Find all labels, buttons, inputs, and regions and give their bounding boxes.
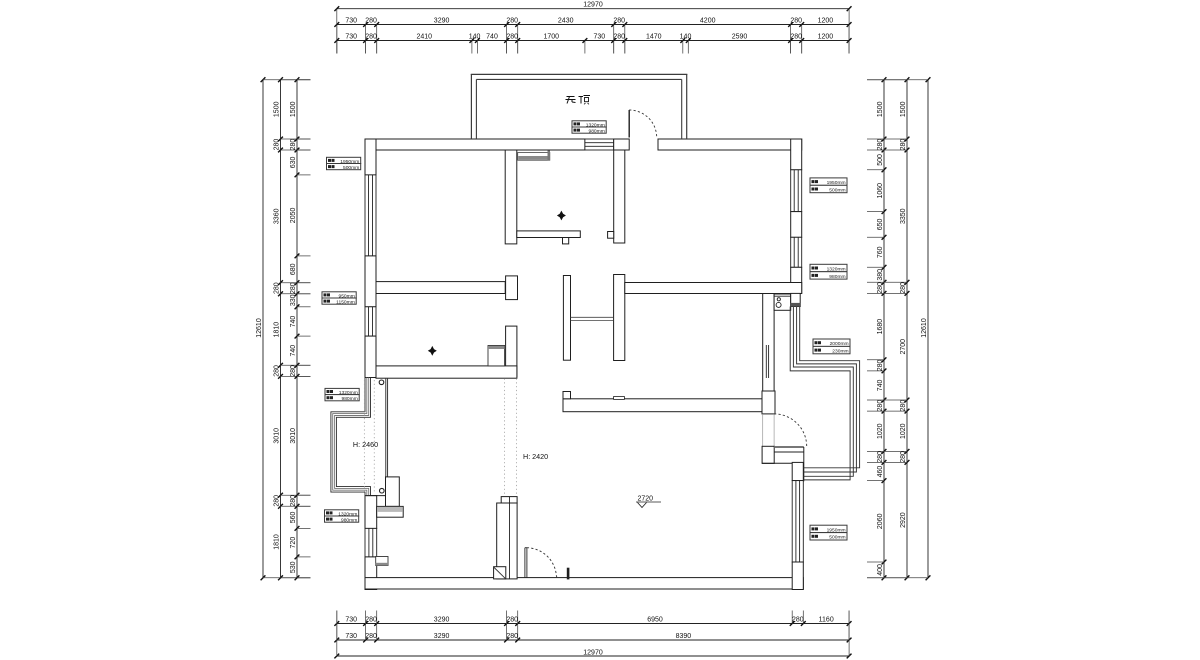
svg-text:1020: 1020 [877,423,884,439]
svg-text:2920: 2920 [900,512,907,528]
svg-text:280: 280 [613,34,625,41]
svg-text:280: 280 [877,359,884,371]
svg-text:1320mm: 1320mm [586,122,605,128]
svg-text:740: 740 [290,316,297,328]
svg-text:280: 280 [290,365,297,377]
svg-text:H: 2460: H: 2460 [353,440,378,449]
svg-text:6950: 6950 [647,617,663,624]
svg-text:1470: 1470 [646,34,662,41]
svg-text:500mm: 500mm [829,535,845,541]
svg-text:980mm: 980mm [588,129,604,135]
svg-text:1810: 1810 [274,322,281,338]
svg-text:1320mm: 1320mm [338,511,357,517]
svg-text:560: 560 [290,511,297,523]
svg-text:730: 730 [593,34,605,41]
svg-text:2060: 2060 [877,513,884,529]
svg-text:280: 280 [506,18,518,25]
svg-text:500: 500 [877,154,884,166]
svg-text:380: 380 [877,269,884,281]
svg-text:740: 740 [486,34,498,41]
svg-text:1020: 1020 [900,423,907,439]
svg-text:12610: 12610 [256,318,263,338]
svg-text:280: 280 [790,18,802,25]
svg-text:280: 280 [900,451,907,463]
svg-text:280: 280 [365,34,377,41]
svg-text:2410: 2410 [417,34,433,41]
svg-text:1500: 1500 [274,101,281,117]
svg-text:500mm: 500mm [829,187,845,193]
svg-text:1950mm: 1950mm [827,180,846,186]
svg-text:3350: 3350 [900,208,907,224]
svg-text:280: 280 [900,139,907,151]
svg-text:2050: 2050 [290,208,297,224]
svg-text:500mm: 500mm [343,165,359,171]
svg-text:12610: 12610 [921,318,928,338]
svg-text:280: 280 [274,282,281,294]
svg-text:1950mm: 1950mm [827,527,846,533]
svg-text:230mm: 230mm [832,349,848,355]
svg-text:3010: 3010 [274,428,281,444]
svg-text:280: 280 [506,617,518,624]
svg-text:760: 760 [877,246,884,258]
svg-text:280: 280 [365,633,377,640]
svg-text:1500: 1500 [290,101,297,117]
svg-text:980mm: 980mm [829,274,845,280]
svg-text:730: 730 [345,18,357,25]
svg-text:1950mm: 1950mm [340,159,359,165]
svg-text:530: 530 [290,561,297,573]
svg-text:280: 280 [790,34,802,41]
svg-text:280: 280 [877,451,884,463]
svg-text:3360: 3360 [274,208,281,224]
svg-text:280: 280 [365,18,377,25]
svg-text:740: 740 [290,345,297,357]
svg-text:1680: 1680 [877,319,884,335]
svg-text:730: 730 [345,34,357,41]
svg-text:2720: 2720 [638,496,654,503]
svg-text:950mm: 950mm [338,293,354,299]
svg-text:2000mm: 2000mm [830,341,849,347]
svg-text:980mm: 980mm [341,518,357,524]
svg-text:1810: 1810 [274,534,281,550]
svg-text:330: 330 [290,294,297,306]
svg-text:280: 280 [506,633,518,640]
svg-text:280: 280 [506,34,518,41]
svg-text:3010: 3010 [290,428,297,444]
svg-text:1200: 1200 [818,34,834,41]
svg-text:3290: 3290 [434,617,450,624]
svg-text:12970: 12970 [583,649,603,656]
svg-text:1200: 1200 [818,18,834,25]
svg-text:8390: 8390 [676,633,692,640]
svg-text:280: 280 [613,18,625,25]
svg-text:280: 280 [274,495,281,507]
svg-text:980mm: 980mm [341,396,357,402]
svg-text:1500: 1500 [900,101,907,117]
svg-text:3290: 3290 [434,18,450,25]
svg-text:1060: 1060 [877,183,884,199]
svg-text:140: 140 [469,34,481,41]
svg-text:400: 400 [877,564,884,576]
svg-text:H: 2420: H: 2420 [523,452,548,461]
svg-text:460: 460 [877,466,884,478]
svg-text:630: 630 [290,156,297,168]
svg-text:1160: 1160 [819,617,834,624]
svg-text:280: 280 [877,400,884,412]
svg-text:12970: 12970 [583,2,603,9]
svg-text:3290: 3290 [434,633,450,640]
svg-text:280: 280 [365,617,377,624]
svg-text:280: 280 [877,139,884,151]
svg-text:4200: 4200 [700,18,716,25]
svg-text:2590: 2590 [732,34,748,41]
svg-text:280: 280 [792,617,804,624]
svg-text:1320mm: 1320mm [827,266,846,272]
svg-text:280: 280 [900,282,907,294]
svg-text:2700: 2700 [900,339,907,355]
svg-text:280: 280 [290,282,297,294]
svg-text:730: 730 [345,633,357,640]
svg-text:280: 280 [290,495,297,507]
svg-text:2430: 2430 [558,18,574,25]
svg-text:1500: 1500 [877,101,884,117]
svg-text:280: 280 [274,139,281,151]
svg-text:280: 280 [900,400,907,412]
svg-text:720: 720 [290,537,297,549]
svg-text:1320mm: 1320mm [339,390,358,396]
svg-text:1700: 1700 [544,34,560,41]
svg-text:280: 280 [290,139,297,151]
svg-text:1150mm: 1150mm [336,300,355,306]
svg-text:650: 650 [877,218,884,230]
svg-text:740: 740 [877,379,884,391]
svg-text:680: 680 [290,263,297,275]
svg-text:280: 280 [877,282,884,294]
svg-text:280: 280 [274,365,281,377]
svg-text:140: 140 [680,34,692,41]
svg-text:730: 730 [345,617,357,624]
